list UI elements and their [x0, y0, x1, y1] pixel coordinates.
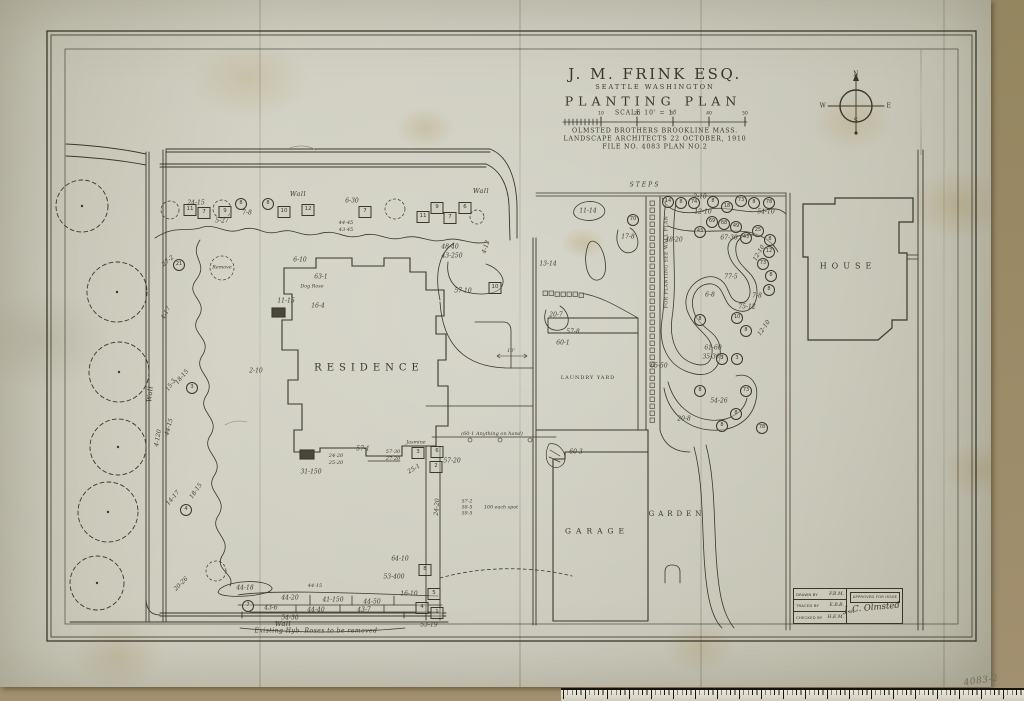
dashed-plant-circles: [161, 199, 484, 581]
compass-south-label: S: [854, 118, 859, 125]
plant-code-label: 44-45: [339, 220, 353, 226]
plant-square-marker: 1: [431, 607, 444, 619]
plant-code-label: 25-20: [329, 460, 343, 466]
plant-circle-marker: 4: [180, 504, 192, 516]
plant-code-label: 77-5: [724, 274, 737, 281]
plant-code-label: 59-5: [462, 512, 473, 517]
plant-circle-marker: 73: [757, 258, 769, 270]
west-road: [66, 144, 166, 622]
plant-code-label: 57-8: [566, 329, 579, 336]
west-bed-scallop: [193, 240, 231, 586]
plant-square-marker: 7: [444, 212, 457, 224]
plant-circle-marker: 8: [262, 198, 274, 210]
area-label: Wall: [145, 386, 154, 403]
plant-code-label: 20-7: [549, 312, 562, 319]
border-frame: [47, 31, 976, 641]
plant-circle-marker: 8: [763, 284, 775, 296]
plant-square-marker: 9: [431, 202, 444, 214]
plant-code-label: 67-30: [720, 235, 737, 242]
plant-code-label: 57-20: [443, 458, 460, 465]
plant-code-label: 16-10: [400, 591, 417, 598]
area-label: GARDEN: [649, 510, 706, 518]
client-location: SEATTLE WASHINGTON: [595, 83, 714, 91]
photographic-ruler: [561, 688, 1024, 701]
checked-by-label: CHECKED BY: [796, 615, 822, 620]
plant-square-marker: 5: [428, 588, 441, 600]
plant-code-label: 53-400: [383, 574, 404, 581]
scale-tick-number: 30: [670, 112, 676, 117]
plant-square-marker: 10: [278, 206, 291, 218]
firm-name: OLMSTED BROTHERS BROOKLINE MASS.: [572, 128, 738, 135]
compass-west-label: W: [820, 103, 827, 110]
plant-code-label: 2-10: [249, 368, 262, 375]
plant-circle-marker: 18: [721, 201, 733, 213]
area-label: Existing Hyb. Roses to be removed: [255, 628, 378, 635]
plant-circle-marker: 70: [627, 214, 639, 226]
plant-square-marker: 11: [417, 211, 430, 223]
compass-east-label: E: [887, 103, 892, 110]
tree-center-dots: [81, 205, 120, 584]
plant-code-label: 7-8: [752, 293, 762, 300]
plant-square-marker: 10: [489, 282, 502, 294]
plant-code-label: 12-10: [694, 209, 711, 216]
area-label: LAUNDRY YARD: [561, 375, 615, 381]
traced-by-value: E.B.B.: [830, 603, 845, 608]
plant-circle-marker: 7: [242, 600, 254, 612]
laundry-yard-outline: [533, 238, 648, 625]
area-label: FOR PLANTING SEE WALL PLAN: [665, 216, 670, 309]
plant-code-label: 17-8: [621, 234, 634, 241]
plant-square-marker: 11: [184, 204, 197, 216]
plant-code-label: 61-60: [704, 345, 721, 352]
checked-by-row: CHECKED BY H.E.M.: [794, 612, 846, 623]
plant-square-marker: 6: [431, 446, 444, 458]
plant-square-marker: 2: [430, 461, 443, 473]
plant-code-label: 11-15: [277, 298, 294, 305]
plant-circle-marker: 78: [756, 422, 768, 434]
approval-rows: DRAWN BY F.B.M. TRACED BY E.B.B. CHECKED…: [794, 589, 847, 623]
plant-code-label: 44-20: [281, 595, 298, 602]
drawn-by-label: DRAWN BY: [796, 592, 818, 597]
plant-square-marker: 7: [359, 206, 372, 218]
plant-square-marker: 8: [419, 564, 432, 576]
scale-label: SCALE 10' = 1": [615, 110, 677, 117]
plant-code-label: 48-40: [441, 244, 458, 251]
plant-code-label: 57-30: [386, 449, 400, 455]
ruler-major-ticks: [563, 690, 1024, 699]
plant-code-label: 63-1: [314, 274, 327, 281]
plant-circle-marker: 8: [694, 385, 706, 397]
plant-code-label: 44-40: [307, 607, 324, 614]
plant-code-label: 5-27: [215, 218, 228, 225]
plant-code-label: 65-50: [650, 363, 667, 370]
plant-circle-marker: 8: [694, 314, 706, 326]
plant-circle-marker: 14: [662, 196, 674, 208]
approval-box: DRAWN BY F.B.M. TRACED BY E.B.B. CHECKED…: [793, 588, 903, 624]
area-label: STEPS: [630, 182, 661, 189]
plant-code-label: 54-26: [710, 398, 727, 405]
client-name: J. M. FRINK ESQ.: [568, 65, 742, 83]
plant-circle-marker: 8: [765, 270, 777, 282]
plant-code-label: 6-8: [705, 292, 715, 299]
plant-circle-marker: 68: [718, 218, 730, 230]
garage-outline: [553, 430, 648, 621]
plant-circle-marker: 3: [186, 382, 198, 394]
plant-code-label: 44-18: [236, 585, 253, 592]
plant-code-label: 31-150: [300, 469, 321, 476]
plant-code-label: 100 each spot: [484, 506, 518, 511]
plant-code-label: 6-30: [345, 198, 358, 205]
checked-by-value: H.E.M.: [828, 615, 844, 620]
plant-code-label: 57-10: [454, 288, 471, 295]
drawn-by-value: F.B.M.: [829, 592, 844, 597]
drawn-by-row: DRAWN BY F.B.M.: [794, 589, 846, 600]
plant-code-label: 27-20: [386, 456, 400, 462]
plant-code-label: 43-45: [339, 227, 353, 233]
plant-code-label: Dog Rose: [300, 285, 323, 290]
plant-circle-marker: 78: [763, 197, 775, 209]
plant-code-label: 60-1: [556, 340, 569, 347]
plant-code-label: 54-10: [757, 209, 774, 216]
plant-code-label: 43-7: [357, 607, 370, 614]
plant-code-label: 24-20: [433, 498, 441, 516]
plant-circle-marker: 21: [173, 259, 185, 271]
plant-circle-marker: 8: [235, 198, 247, 210]
area-label: GARAGE: [565, 527, 629, 536]
plant-square-marker: 4: [416, 602, 429, 614]
plant-code-label: 44-50: [363, 599, 380, 606]
plant-circle-marker: 43: [694, 226, 706, 238]
east-street: [918, 150, 923, 630]
plant-code-label: 43-6: [264, 605, 277, 612]
plant-circle-marker: 74: [688, 197, 700, 209]
plant-circle-marker: 10: [731, 312, 743, 324]
plant-circle-marker: 49: [730, 221, 742, 233]
plant-circle-marker: 73: [735, 195, 747, 207]
plant-code-label: Jasmine: [406, 441, 425, 446]
plant-circle-marker: 8: [740, 325, 752, 337]
plant-circle-marker: 8: [748, 197, 760, 209]
scale-tick-number: 10: [598, 112, 604, 117]
plant-code-label: 44-15: [308, 583, 322, 589]
scale-bar: [563, 117, 747, 126]
area-label: Wall: [290, 190, 306, 198]
plant-code-label: 75-12: [738, 304, 755, 311]
plant-code-label: 48-20: [665, 237, 682, 244]
plant-circle-marker: 3: [716, 353, 728, 365]
plant-code-label: 16-4: [311, 303, 324, 310]
plant-code-label: 43-250: [441, 253, 462, 260]
area-label: RESIDENCE: [314, 363, 424, 374]
scale-tick-number: 50: [742, 112, 748, 117]
plant-code-label: 7-8: [242, 210, 252, 217]
plant-code-label: 24-20: [329, 453, 343, 459]
plant-circle-marker: 8: [716, 420, 728, 432]
file-number: FILE NO. 4083 PLAN NO.2: [602, 144, 707, 151]
plant-circle-marker: 69: [706, 216, 718, 228]
plant-circle-marker: 8: [764, 234, 776, 246]
plant-circle-marker: 3: [731, 353, 743, 365]
plant-circle-marker: 25: [752, 225, 764, 237]
traced-by-row: TRACED BY E.B.B.: [794, 600, 846, 611]
plant-square-marker: 3: [412, 447, 425, 459]
plant-circle-marker: 8: [707, 196, 719, 208]
plant-square-marker: 12: [302, 204, 315, 216]
plant-square-marker: 7: [198, 207, 211, 219]
plant-circle-marker: 8: [730, 408, 742, 420]
scale-tick-number: 40: [706, 112, 712, 117]
area-label: Wall: [473, 187, 489, 195]
plant-circle-marker: 8: [675, 197, 687, 209]
plant-circle-marker: 43: [740, 232, 752, 244]
plant-square-marker: 6: [459, 202, 472, 214]
compass-north-label: N: [853, 71, 859, 78]
plant-square-marker: 9: [219, 206, 232, 218]
lower-garden-paths: [660, 430, 734, 628]
drawing-title: PLANTING PLAN: [565, 94, 742, 109]
plant-code-label: Remove: [212, 266, 231, 271]
existing-tree-circles: [56, 180, 149, 610]
plant-code-label: 20-8: [677, 416, 690, 423]
plant-code-label: 13-14: [539, 261, 556, 268]
plant-code-label: 53-19: [420, 622, 437, 629]
traced-by-label: TRACED BY: [796, 603, 819, 608]
plant-code-label: 57-1: [356, 446, 369, 453]
plant-code-label: 10': [507, 348, 515, 354]
plant-code-label: 54-30: [281, 615, 298, 622]
scale-tick-number: 20: [634, 112, 640, 117]
plant-circle-marker: 12: [763, 246, 775, 258]
compass-rose: [828, 73, 884, 135]
plant-code-label: 64-10: [391, 556, 408, 563]
plant-code-label: (60-1 Anything on hand): [461, 431, 523, 437]
north-bed-scallop: [155, 226, 488, 243]
plant-code-label: 58-5: [462, 506, 473, 511]
plant-code-label: 41-150: [322, 597, 343, 604]
plant-circle-marker: 73: [740, 385, 752, 397]
plant-code-label: 11-14: [579, 208, 596, 215]
plant-code-label: 6-10: [293, 257, 306, 264]
area-label: HOUSE: [820, 262, 877, 271]
scanned-planting-plan: { "title_block": { "client": "J. M. FRIN…: [0, 0, 1024, 701]
firm-date: LANDSCAPE ARCHITECTS 22 OCTOBER, 1910: [564, 136, 747, 143]
plant-code-label: 57-2: [462, 500, 473, 505]
residence-outline: [272, 258, 448, 461]
forecourt-paths: [426, 243, 533, 406]
plant-code-label: 60-3: [569, 449, 582, 456]
